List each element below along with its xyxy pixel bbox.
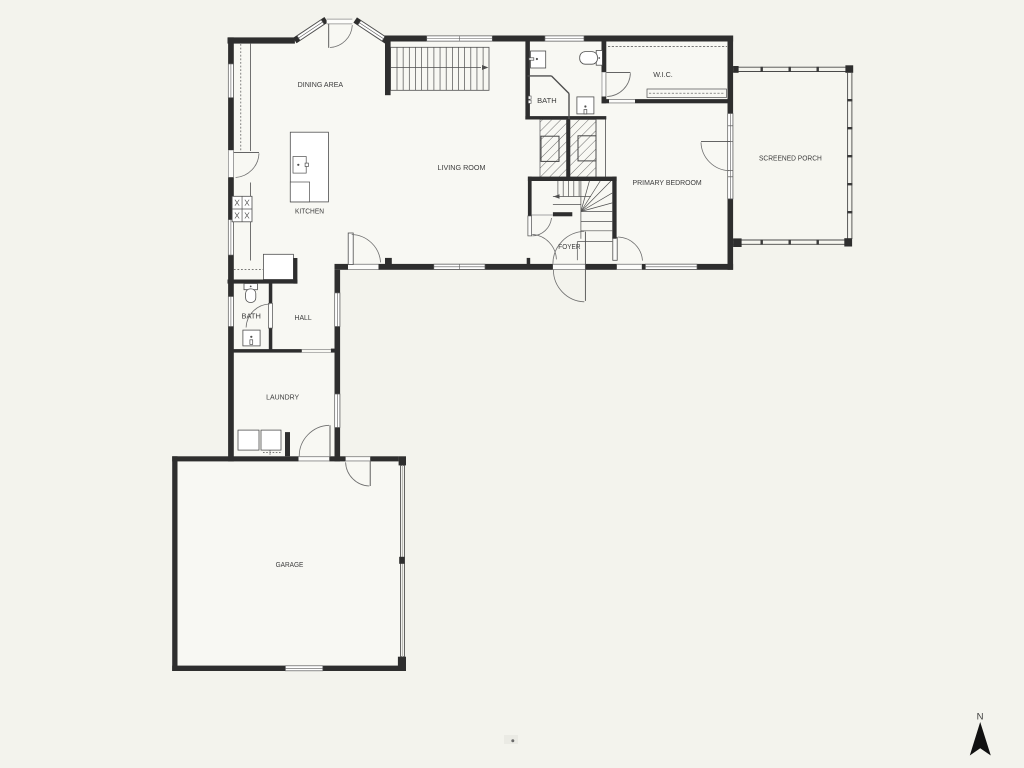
svg-text:DINING AREA: DINING AREA bbox=[298, 80, 344, 89]
svg-text:PRIMARY BEDROOM: PRIMARY BEDROOM bbox=[633, 178, 702, 187]
svg-text:LAUNDRY: LAUNDRY bbox=[266, 393, 299, 402]
svg-text:LIVING ROOM: LIVING ROOM bbox=[438, 163, 486, 172]
svg-text:BATH: BATH bbox=[242, 312, 261, 321]
svg-text:FOYER: FOYER bbox=[558, 242, 580, 251]
svg-text:KITCHEN: KITCHEN bbox=[295, 206, 324, 215]
svg-text:SCREENED PORCH: SCREENED PORCH bbox=[759, 154, 822, 163]
svg-text:N: N bbox=[977, 712, 984, 723]
svg-text:HALL: HALL bbox=[295, 313, 312, 322]
svg-text:GARAGE: GARAGE bbox=[276, 560, 304, 569]
svg-text:BATH: BATH bbox=[537, 96, 557, 105]
svg-text:W.I.C.: W.I.C. bbox=[653, 70, 673, 79]
